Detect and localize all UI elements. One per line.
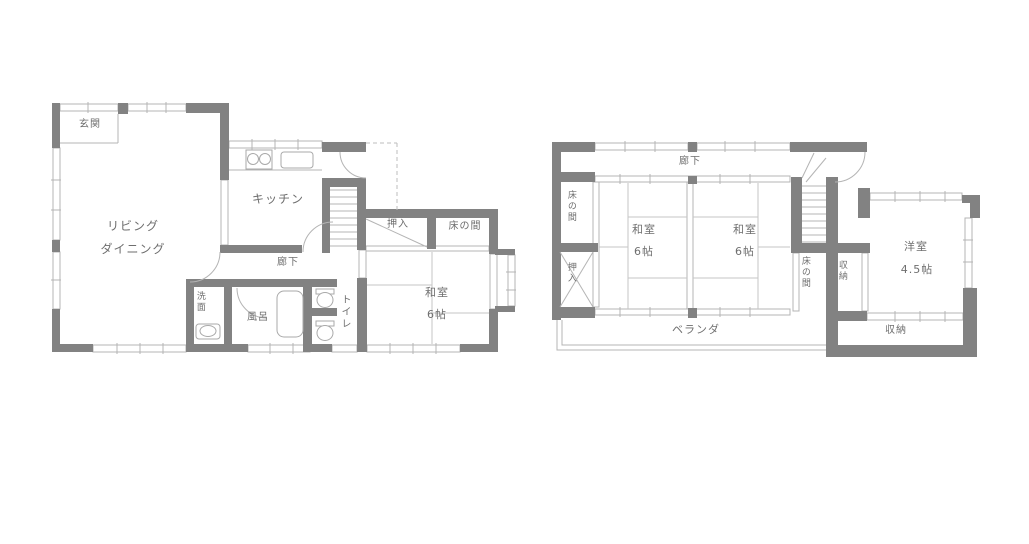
label-closet-1f: 押入 (381, 219, 415, 230)
label-entrance: 玄関 (70, 119, 110, 130)
stove-burner-left (248, 154, 259, 165)
top-window-left (595, 143, 688, 150)
washitsu-sliding-door (359, 250, 366, 278)
stair-winder-line-2 (806, 158, 826, 182)
stove-burner-right (260, 154, 271, 165)
toilet-bottom-window (332, 345, 357, 352)
top-window-right (697, 143, 790, 150)
living-kitchen-divider (221, 180, 228, 245)
label-hallway-2f: 廊下 (670, 156, 710, 167)
label-storage-center: 収納 (836, 260, 846, 282)
entrance-door-window (60, 104, 118, 111)
floorplan-linework (0, 0, 1029, 544)
label-western-room-size: 4.5帖 (892, 264, 942, 276)
label-living-line1: リビング (94, 220, 172, 233)
floor1-dashed-lines (366, 143, 397, 211)
label-closet-left: 押入 (565, 262, 575, 284)
label-western-room: 洋室 (894, 241, 938, 253)
label-kitchen: キッチン (248, 193, 308, 206)
label-washitsu-2f-2-size: 6帖 (729, 246, 761, 258)
staircase-1f (330, 190, 357, 246)
hallway-door-arc (190, 252, 220, 282)
label-washroom: 洗面 (194, 291, 204, 313)
western-room-bottom-window (867, 313, 963, 320)
toilet-bowl-upper (317, 293, 333, 308)
label-bath: 風呂 (243, 312, 273, 323)
label-washitsu-2f-1: 和室 (626, 224, 662, 236)
label-washitsu-2f-1-size: 6帖 (628, 246, 660, 258)
bathtub (277, 291, 303, 337)
western-room-top-window (870, 193, 962, 200)
kitchen-sink (281, 152, 313, 168)
kitchen-fixtures (246, 150, 313, 169)
living-left-window-1 (53, 148, 60, 240)
label-living-line2: ダイニング (90, 243, 176, 256)
label-tokonoma-left: 床の間 (565, 190, 575, 223)
washitsu-east-wall (490, 254, 497, 309)
toilet-bowl-lower (317, 326, 333, 341)
kitchen-back-door-arc (340, 152, 366, 178)
label-tokonoma-1f: 床の間 (441, 221, 489, 232)
label-toilet: トイレ (339, 294, 350, 330)
label-hallway-1f: 廊下 (268, 257, 308, 268)
stairs-door-arc (835, 152, 865, 182)
washitsu-room-divider (687, 182, 693, 309)
label-veranda: ベランダ (668, 324, 724, 336)
label-storage-bottom: 収納 (878, 325, 914, 336)
washroom-sink-bowl (200, 326, 216, 337)
label-washitsu-2f-2: 和室 (727, 224, 763, 236)
western-room-right-window (965, 218, 972, 288)
storage-sliding-door (862, 253, 868, 311)
bay-window (508, 255, 515, 306)
label-washitsu-1f-size: 6帖 (419, 309, 455, 321)
bath-bottom-window (248, 345, 310, 352)
label-tokonoma-center: 床の間 (799, 256, 809, 289)
top-window (128, 104, 186, 111)
floorplan-canvas: 玄関 リビング ダイニング キッチン 廊下 押入 床の間 洗面 風呂 トイレ 和… (0, 0, 1029, 544)
label-washitsu-1f: 和室 (417, 287, 457, 299)
